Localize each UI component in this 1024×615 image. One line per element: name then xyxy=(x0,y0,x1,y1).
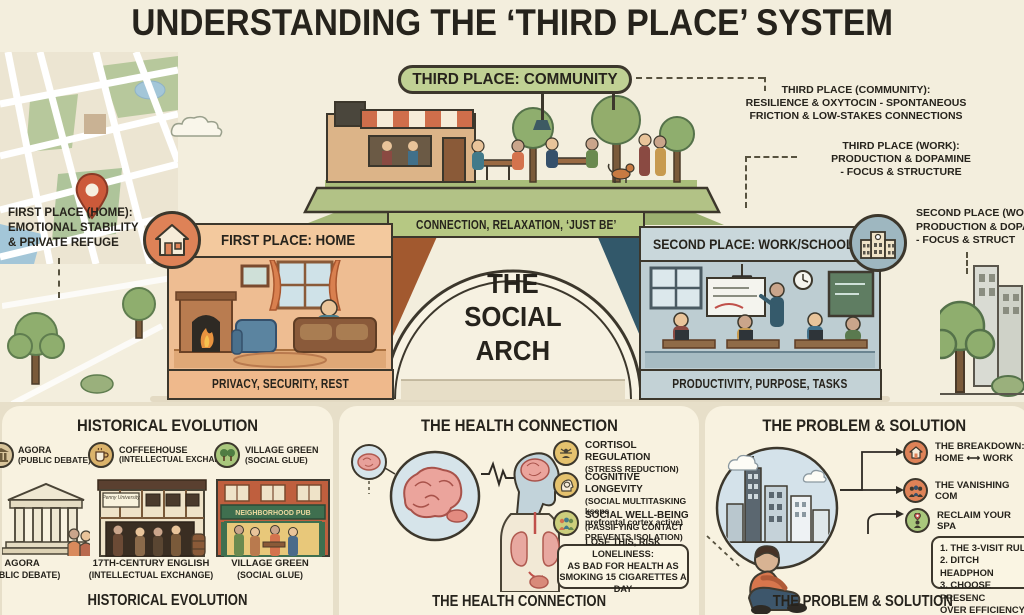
head-torso-illustration xyxy=(501,453,561,592)
health-item-cortisol: CORTISOL REGULATION (STRESS REDUCTION) xyxy=(553,440,699,474)
city-loneliness-illustration xyxy=(705,438,855,614)
stress-relief-icon xyxy=(553,440,579,466)
connector-dashed-work-v xyxy=(745,156,747,208)
connector-dashed-home xyxy=(58,258,60,298)
coffee-cup-icon xyxy=(88,442,114,468)
street-scene-illustration xyxy=(940,252,1024,402)
page-title: UNDERSTANDING THE ‘THIRD PLACE’ SYSTEM xyxy=(0,0,1024,46)
first-place-header: FIRST PLACE: HOME xyxy=(169,225,391,258)
arch-label-text: THE SOCIAL ARCH xyxy=(464,267,561,366)
home-badge xyxy=(143,211,201,269)
legend-item-coffeehouse: COFFEEHOUSE (INTELLECTUAL EXCHANGE) xyxy=(88,442,235,468)
page-title-text: UNDERSTANDING THE ‘THIRD PLACE’ SYSTEM xyxy=(131,2,893,44)
home-scene xyxy=(174,260,386,368)
cafe-illustration xyxy=(327,102,475,182)
column-icon xyxy=(0,442,14,468)
window-icon xyxy=(651,268,701,308)
small-brain-icon xyxy=(352,445,386,494)
school-icon xyxy=(859,226,897,260)
problem-heading: THE PROBLEM & SOLUTION xyxy=(705,414,1024,438)
desks-people xyxy=(663,313,867,348)
home-banner-text: PRIVACY, SECURITY, REST xyxy=(212,377,349,391)
platform-deck xyxy=(303,186,721,214)
caption-agora: AGORA (PUBLIC DEBATE) xyxy=(0,558,87,581)
clock-icon xyxy=(794,271,812,289)
solution-box: 1. THE 3-VISIT RULE 2. DITCH HEADPHON 3.… xyxy=(931,536,1024,589)
legend-item-agora: AGORA (PUBLIC DEBATE) xyxy=(0,442,91,468)
historical-footer: HISTORICAL EVOLUTION xyxy=(2,590,333,612)
svg-text:NEIGHBORHOOD PUB: NEIGHBORHOOD PUB xyxy=(235,510,310,517)
barrel-icon xyxy=(192,534,205,556)
caption-village-green: VILLAGE GREEN (SOCIAL GLUE) xyxy=(210,558,330,581)
third-place-badge: THIRD PLACE: COMMUNITY xyxy=(398,65,632,94)
ekg-line xyxy=(481,464,515,484)
infographic-third-place: UNDERSTANDING THE ‘THIRD PLACE’ SYSTEM xyxy=(0,0,1024,615)
health-footer: THE HEALTH CONNECTION xyxy=(339,591,699,613)
people-group-icon xyxy=(553,510,579,536)
third-place-badge-text: THIRD PLACE: COMMUNITY xyxy=(412,71,617,89)
cloud-icon xyxy=(168,112,234,142)
loneliness-warning-box: LOSE THIS, RISK LONELINESS: AS BAD FOR H… xyxy=(557,544,689,589)
coffeehouse-illustration: Penny University xyxy=(96,478,208,558)
historical-evolution-card: HISTORICAL EVOLUTION AGORA (PUBLIC DEBAT… xyxy=(2,406,333,615)
connector-dashed-work-h xyxy=(745,156,797,158)
badge-stem xyxy=(612,92,615,110)
annotation-third-place-work: THIRD PLACE (WORK): PRODUCTION & DOPAMIN… xyxy=(800,140,1002,179)
work-scene xyxy=(645,264,875,368)
community-banner-text: CONNECTION, RELAXATION, ‘JUST BE’ xyxy=(416,218,617,232)
health-connection-card: THE HEALTH CONNECTION xyxy=(339,406,699,615)
problem-item-vanishing: THE VANISHING COM xyxy=(903,478,1024,503)
house-icon xyxy=(154,223,190,257)
first-place-block: FIRST PLACE: HOME xyxy=(167,223,393,399)
people-group xyxy=(472,134,666,180)
work-banner-text: PRODUCTIVITY, PURPOSE, TASKS xyxy=(672,377,847,391)
historical-heading: HISTORICAL EVOLUTION xyxy=(2,414,333,438)
brain-head-icon xyxy=(553,472,579,498)
problem-footer: THE PROBLEM & SOLUTION xyxy=(705,591,1020,613)
trees-icon xyxy=(214,442,240,468)
picture-frame-icon xyxy=(242,266,268,286)
work-badge xyxy=(849,214,907,272)
coffeehouse-sign: Penny University xyxy=(102,493,140,507)
pub-sign: NEIGHBORHOOD PUB xyxy=(221,505,325,519)
reclaim-pin-icon xyxy=(905,508,930,533)
svg-text:Penny University: Penny University xyxy=(102,495,140,501)
rug-icon xyxy=(234,353,326,367)
armchair-icon xyxy=(232,320,276,354)
health-illustration xyxy=(343,434,561,592)
community-banner: CONNECTION, RELAXATION, ‘JUST BE’ xyxy=(387,211,645,238)
first-place-header-text: FIRST PLACE: HOME xyxy=(221,232,355,249)
house-icon xyxy=(903,440,928,465)
problem-solution-card: THE PROBLEM & SOLUTION xyxy=(705,406,1024,615)
pub-illustration: NEIGHBORHOOD PUB xyxy=(215,478,331,558)
problem-item-reclaim: RECLAIM YOUR SPA xyxy=(905,508,1024,533)
connector-dashed-community-h xyxy=(636,77,764,79)
problem-item-breakdown: THE BREAKDOWN: HOME ⟷ WORK xyxy=(903,440,1024,465)
home-banner: PRIVACY, SECURITY, REST xyxy=(167,369,394,400)
second-place-header: SECOND PLACE: WORK/SCHOOL xyxy=(641,228,879,262)
caption-coffeehouse: 17TH-CENTURY ENGLISH (INTELLECTUAL EXCHA… xyxy=(82,558,220,581)
map-trees-illustration xyxy=(2,272,172,404)
work-banner: PRODUCTIVITY, PURPOSE, TASKS xyxy=(639,369,882,400)
second-place-header-text: SECOND PLACE: WORK/SCHOOL xyxy=(653,236,854,252)
annotation-third-place-community: THIRD PLACE (COMMUNITY): RESILIENCE & OX… xyxy=(715,84,997,123)
legend-item-village-green: VILLAGE GREEN (SOCIAL GLUE) xyxy=(214,442,319,468)
second-place-block: SECOND PLACE: WORK/SCHOOL xyxy=(639,226,881,399)
large-brain-icon xyxy=(391,452,479,540)
awning-icon xyxy=(361,110,473,128)
people-group-icon xyxy=(903,478,928,503)
whiteboard-icon xyxy=(707,278,765,316)
community-scene xyxy=(325,94,697,192)
annotation-second-place-clipped: SECOND PLACE (WO PRODUCTION & DOPA - FOC… xyxy=(916,207,1024,248)
tree-icon xyxy=(8,313,64,384)
fireplace-icon xyxy=(176,292,236,352)
flow-arrows xyxy=(838,442,910,536)
badge-stem xyxy=(541,92,544,122)
arch-label: THE SOCIAL ARCH xyxy=(398,262,628,372)
agora-illustration xyxy=(2,478,90,558)
